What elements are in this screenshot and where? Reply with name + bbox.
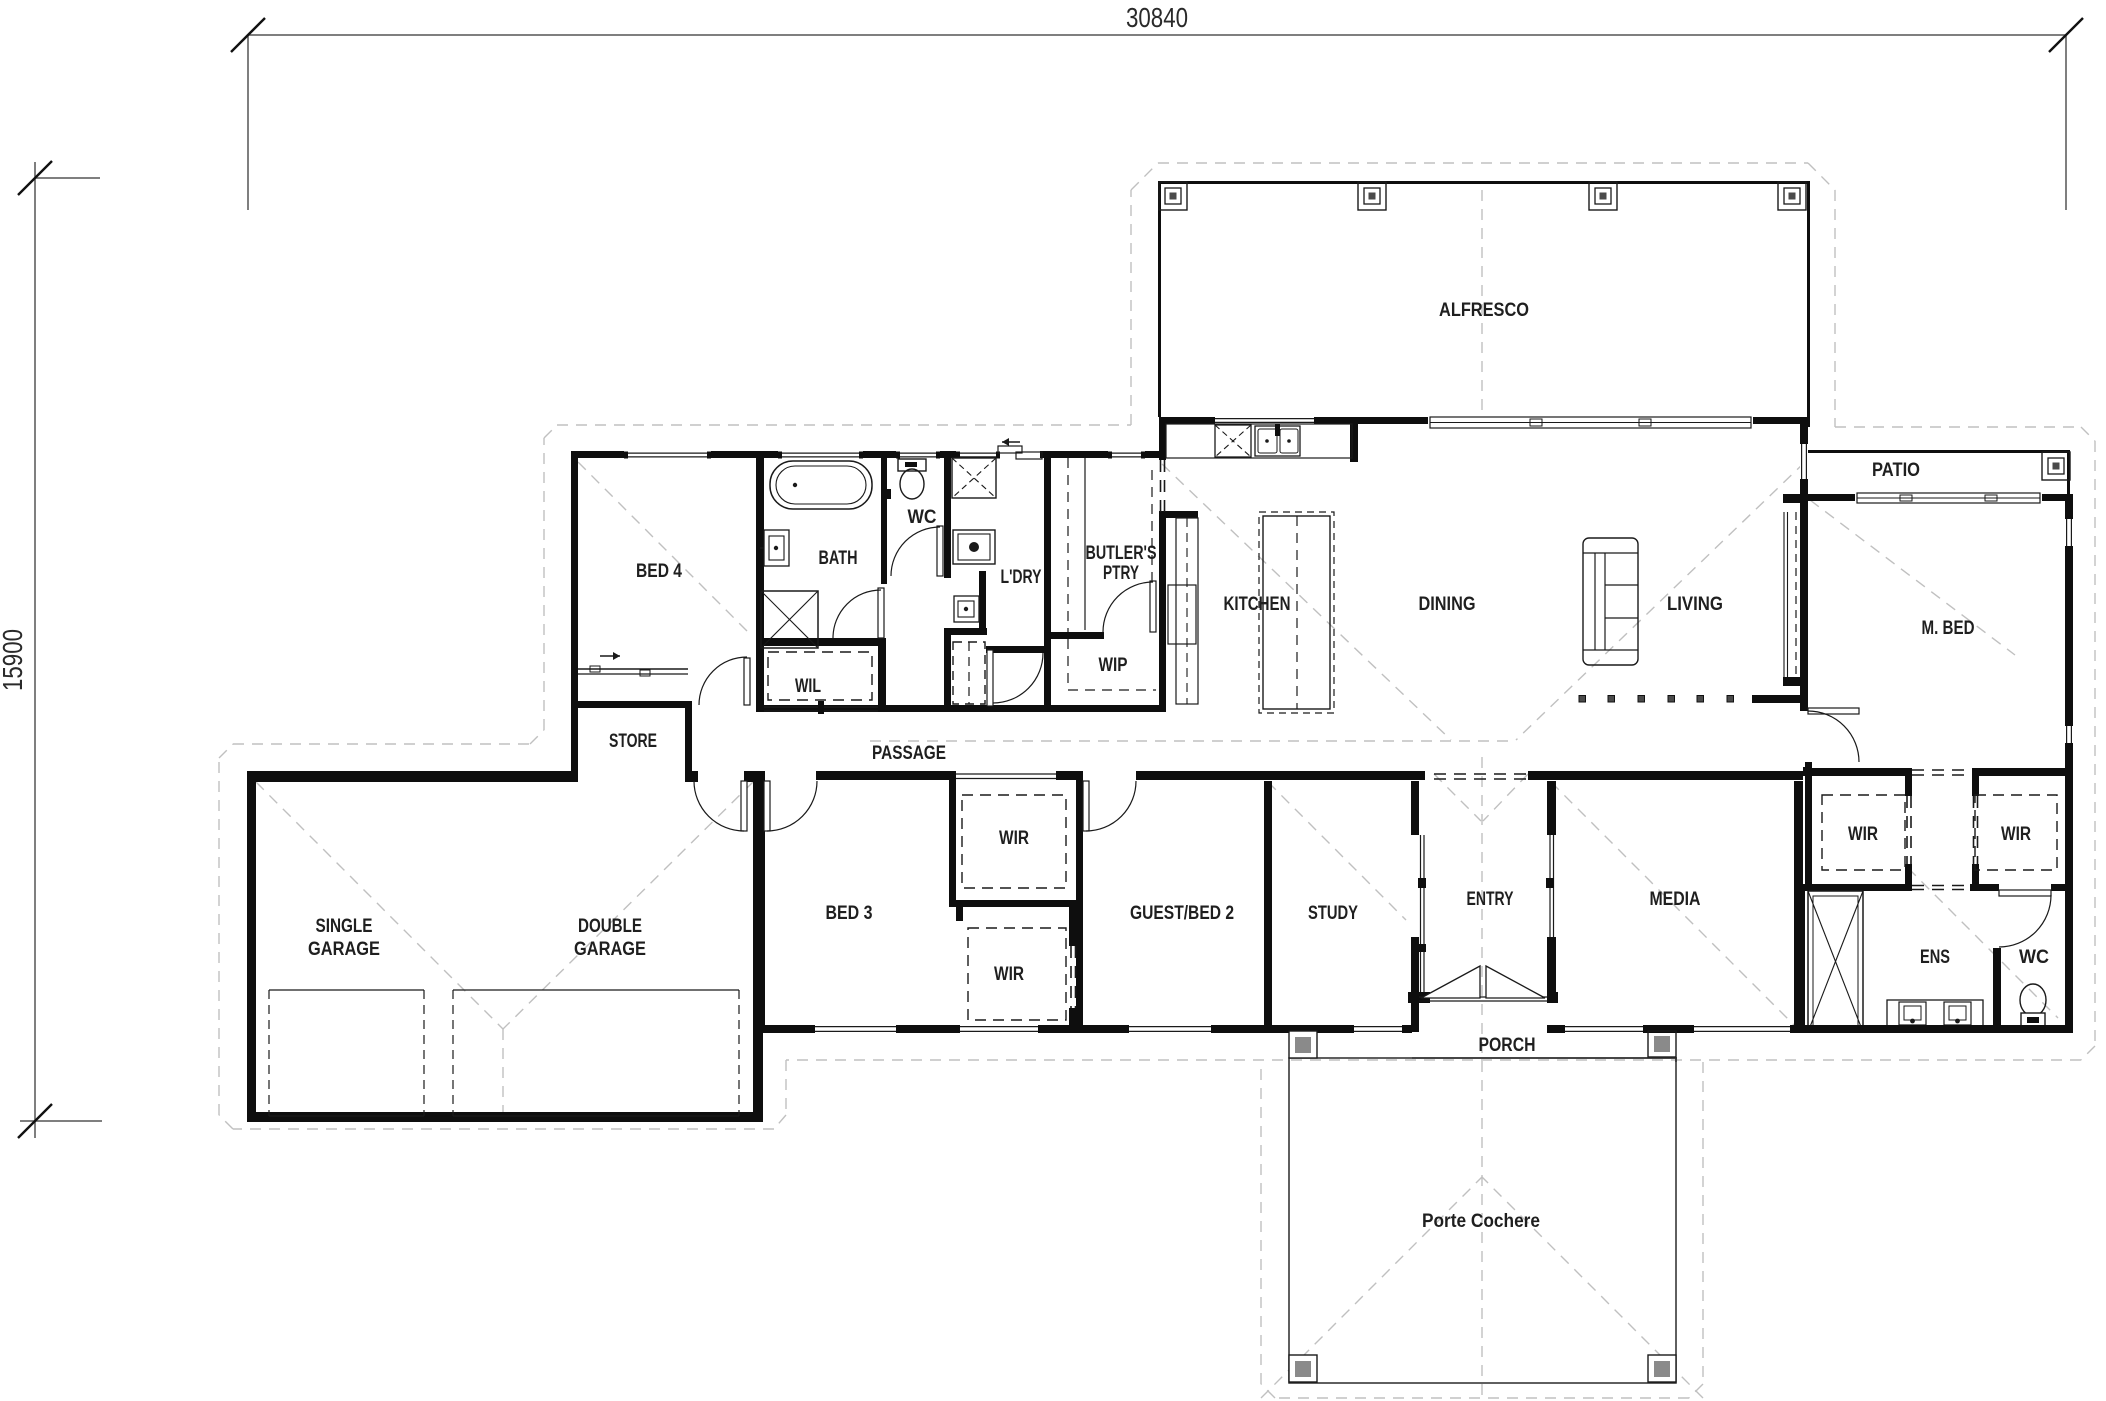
svg-text:WIR: WIR — [1848, 824, 1878, 845]
svg-text:KITCHEN: KITCHEN — [1224, 594, 1291, 615]
svg-text:BED 3: BED 3 — [826, 903, 873, 924]
svg-text:WIR: WIR — [994, 964, 1024, 985]
svg-text:ALFRESCO: ALFRESCO — [1439, 300, 1529, 321]
svg-text:PTRY: PTRY — [1103, 563, 1139, 584]
svg-text:PORCH: PORCH — [1479, 1035, 1536, 1056]
svg-text:SINGLE: SINGLE — [316, 916, 373, 937]
svg-text:MEDIA: MEDIA — [1650, 889, 1701, 910]
svg-text:GARAGE: GARAGE — [308, 939, 380, 960]
svg-text:M. BED: M. BED — [1922, 618, 1975, 639]
svg-text:PASSAGE: PASSAGE — [872, 743, 946, 764]
svg-text:GUEST/BED 2: GUEST/BED 2 — [1130, 903, 1234, 924]
svg-text:GARAGE: GARAGE — [574, 939, 646, 960]
svg-text:DINING: DINING — [1419, 594, 1476, 615]
svg-text:STUDY: STUDY — [1308, 903, 1358, 924]
svg-text:BUTLER'S: BUTLER'S — [1086, 543, 1157, 564]
svg-text:Porte Cochere: Porte Cochere — [1422, 1211, 1540, 1232]
svg-text:15900: 15900 — [0, 629, 28, 691]
svg-text:WIR: WIR — [999, 828, 1029, 849]
svg-text:WIL: WIL — [795, 676, 821, 697]
svg-text:ENS: ENS — [1920, 947, 1950, 968]
svg-text:WIR: WIR — [2001, 824, 2031, 845]
svg-text:PATIO: PATIO — [1872, 460, 1920, 481]
svg-text:L'DRY: L'DRY — [1001, 567, 1042, 588]
svg-text:30840: 30840 — [1126, 2, 1188, 33]
svg-text:LIVING: LIVING — [1667, 594, 1723, 615]
svg-text:WIP: WIP — [1099, 655, 1128, 676]
svg-text:STORE: STORE — [609, 731, 657, 752]
svg-text:WC: WC — [2019, 947, 2049, 968]
svg-text:WC: WC — [908, 507, 937, 528]
svg-text:ENTRY: ENTRY — [1467, 889, 1514, 910]
svg-text:BATH: BATH — [819, 548, 858, 569]
svg-text:DOUBLE: DOUBLE — [578, 916, 642, 937]
svg-text:BED 4: BED 4 — [636, 561, 682, 582]
